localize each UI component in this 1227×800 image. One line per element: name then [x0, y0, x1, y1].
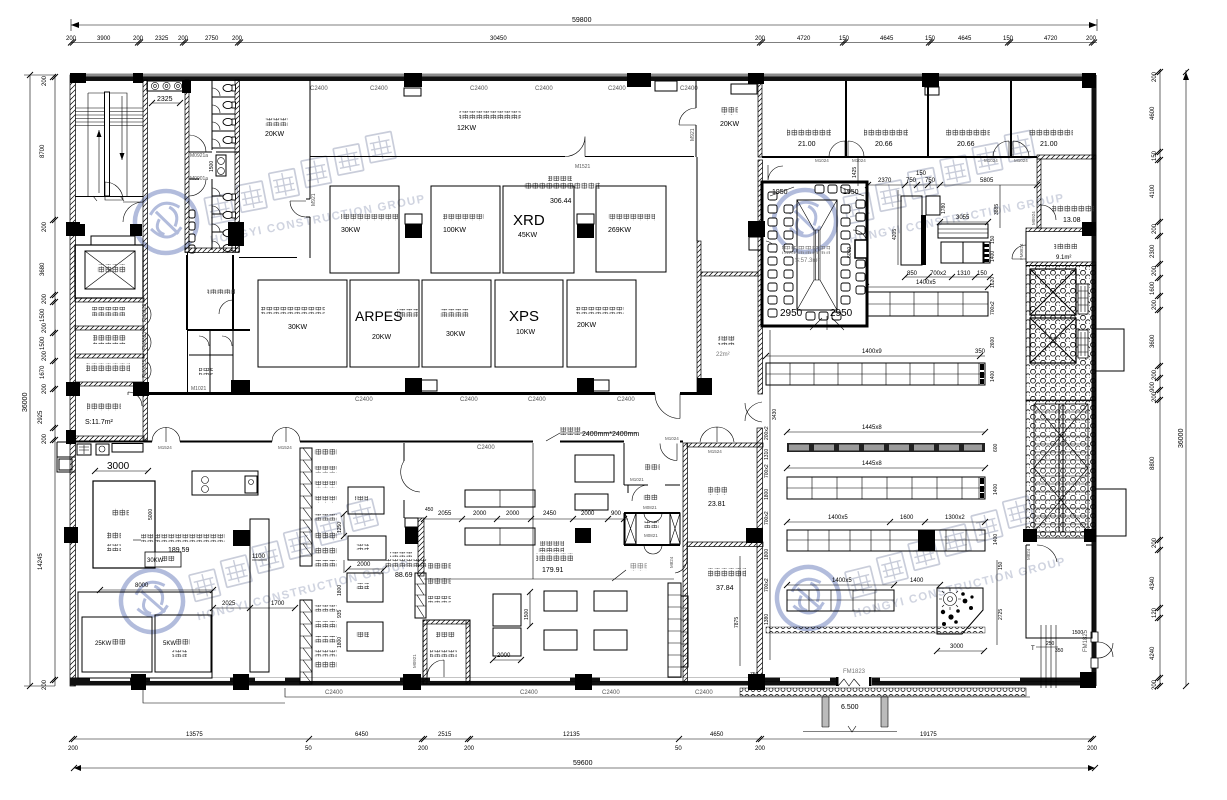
- svg-text:6.500: 6.500: [841, 704, 859, 711]
- svg-text:8000: 8000: [135, 583, 149, 589]
- svg-text:3430: 3430: [772, 409, 778, 420]
- svg-text:C2400: C2400: [602, 690, 620, 696]
- svg-text:2925: 2925: [38, 410, 44, 424]
- svg-text:2025: 2025: [222, 601, 236, 607]
- svg-text:T: T: [1031, 646, 1035, 652]
- svg-text:C2400: C2400: [370, 86, 388, 92]
- svg-text:179.91: 179.91: [542, 567, 564, 574]
- svg-text:750: 750: [906, 178, 917, 184]
- svg-text:30KW: 30KW: [446, 331, 465, 338]
- svg-text:36000: 36000: [22, 392, 29, 412]
- svg-text:5000: 5000: [148, 509, 154, 520]
- svg-text:C2400: C2400: [460, 397, 478, 403]
- svg-text:S:11.7m²: S:11.7m²: [85, 419, 114, 426]
- svg-text:12135: 12135: [563, 732, 580, 738]
- svg-text:2400mm*2400mm: 2400mm*2400mm: [582, 431, 639, 438]
- svg-text:M0821: M0821: [643, 505, 657, 510]
- svg-text:30450: 30450: [490, 36, 507, 42]
- svg-text:37.84: 37.84: [716, 585, 734, 592]
- svg-text:1500: 1500: [40, 336, 46, 350]
- svg-text:M1024: M1024: [984, 158, 998, 163]
- svg-text:1600: 1600: [900, 515, 914, 521]
- svg-text:13.08: 13.08: [1063, 217, 1081, 224]
- svg-text:700x2: 700x2: [764, 464, 770, 478]
- svg-text:30KW: 30KW: [341, 227, 360, 234]
- svg-text:M921: M921: [311, 193, 317, 206]
- svg-text:2325: 2325: [157, 96, 173, 103]
- svg-text:5KW: 5KW: [163, 641, 176, 647]
- svg-text:900: 900: [1150, 381, 1156, 392]
- svg-text:XPS: XPS: [509, 308, 539, 325]
- svg-text:200: 200: [68, 746, 79, 752]
- svg-text:M1021: M1021: [191, 386, 207, 392]
- svg-text:M0924: M0924: [1031, 211, 1036, 225]
- svg-text:3000: 3000: [950, 644, 964, 650]
- svg-text:269KW: 269KW: [608, 227, 631, 234]
- svg-text:FM1825: FM1825: [1083, 629, 1089, 652]
- svg-text:450: 450: [425, 507, 434, 513]
- svg-text:21.00: 21.00: [1040, 141, 1058, 148]
- svg-text:23.81: 23.81: [708, 501, 726, 508]
- svg-text:350: 350: [1055, 648, 1064, 654]
- svg-text:200: 200: [42, 383, 48, 394]
- svg-text:150: 150: [998, 561, 1004, 570]
- svg-text:4720: 4720: [797, 36, 811, 42]
- svg-text:59600: 59600: [573, 760, 593, 767]
- svg-text:88.69: 88.69: [395, 572, 413, 579]
- svg-text:200: 200: [232, 36, 243, 42]
- svg-text:XRD: XRD: [513, 212, 545, 229]
- svg-text:C2400: C2400: [520, 690, 538, 696]
- svg-text:200: 200: [1152, 391, 1158, 402]
- svg-text:1950: 1950: [843, 189, 859, 196]
- svg-text:700x2: 700x2: [764, 578, 770, 592]
- svg-text:FM0823: FM0823: [142, 359, 148, 378]
- svg-text:200: 200: [1152, 223, 1158, 234]
- svg-text:4600: 4600: [1150, 106, 1156, 120]
- svg-text:200: 200: [1152, 537, 1158, 548]
- svg-text:1500: 1500: [40, 308, 46, 322]
- svg-text:250: 250: [1046, 641, 1055, 647]
- svg-text:1620: 1620: [990, 277, 996, 288]
- svg-text:4240: 4240: [1150, 646, 1156, 660]
- svg-text:200: 200: [66, 36, 77, 42]
- svg-text:1780: 1780: [941, 203, 947, 214]
- svg-text:200: 200: [42, 679, 48, 690]
- svg-text:7875: 7875: [734, 617, 740, 628]
- svg-text:M824: M824: [1026, 548, 1031, 560]
- svg-text:150: 150: [977, 271, 988, 277]
- svg-text:935: 935: [337, 609, 343, 618]
- svg-text:M824: M824: [669, 556, 674, 568]
- svg-text:150: 150: [1152, 150, 1158, 161]
- svg-text:8800: 8800: [1150, 456, 1156, 470]
- svg-text:200: 200: [1152, 369, 1158, 380]
- svg-text:C2400: C2400: [355, 397, 373, 403]
- svg-text:700x2: 700x2: [930, 271, 947, 277]
- svg-text:200: 200: [42, 75, 48, 86]
- svg-text:M1024: M1024: [852, 158, 866, 163]
- svg-text:C2400: C2400: [695, 690, 713, 696]
- svg-text:189.59: 189.59: [168, 547, 190, 554]
- svg-text:20.66: 20.66: [875, 141, 893, 148]
- svg-text:700x2: 700x2: [764, 511, 770, 525]
- svg-text:1800: 1800: [764, 549, 770, 560]
- svg-text:3000: 3000: [107, 461, 130, 472]
- svg-text:M1524: M1524: [278, 445, 292, 450]
- svg-text:150: 150: [839, 36, 850, 42]
- svg-text:200: 200: [1152, 71, 1158, 82]
- svg-text:2515: 2515: [438, 732, 452, 738]
- svg-text:1500: 1500: [209, 161, 215, 172]
- svg-text:2300: 2300: [1150, 244, 1156, 258]
- svg-text:150: 150: [990, 235, 996, 244]
- svg-text:4645: 4645: [958, 36, 972, 42]
- svg-text:1400: 1400: [990, 371, 996, 382]
- svg-text:C2400: C2400: [325, 690, 343, 696]
- svg-text:FM1823: FM1823: [843, 669, 866, 675]
- svg-text:20KW: 20KW: [265, 131, 284, 138]
- svg-text:200: 200: [1152, 265, 1158, 276]
- svg-text:750: 750: [750, 672, 759, 678]
- svg-text:C2400: C2400: [608, 86, 626, 92]
- svg-text:2000: 2000: [497, 653, 511, 659]
- svg-text:200: 200: [1086, 36, 1097, 42]
- svg-text:2325: 2325: [155, 36, 169, 42]
- svg-text:200: 200: [42, 293, 48, 304]
- svg-text:4645: 4645: [880, 36, 894, 42]
- svg-text:S:57.3m²: S:57.3m²: [795, 258, 819, 264]
- svg-text:1100: 1100: [252, 554, 266, 560]
- svg-text:100KW: 100KW: [443, 227, 466, 234]
- svg-text:9.1m²: 9.1m²: [1056, 255, 1071, 261]
- svg-text:2000: 2000: [506, 511, 520, 517]
- svg-text:1425: 1425: [852, 167, 858, 178]
- svg-text:M0821: M0821: [644, 533, 658, 538]
- svg-text:M1524: M1524: [708, 449, 722, 454]
- svg-text:M1024: M1024: [665, 436, 679, 441]
- svg-text:14245: 14245: [38, 553, 44, 570]
- svg-text:10KW: 10KW: [516, 329, 535, 336]
- svg-text:M0921: M0921: [412, 654, 417, 668]
- svg-text:200: 200: [42, 322, 48, 333]
- svg-text:M1024: M1024: [1014, 158, 1028, 163]
- svg-text:20KW: 20KW: [577, 322, 596, 329]
- svg-text:1400x5: 1400x5: [828, 515, 848, 521]
- svg-text:22m²: 22m²: [716, 352, 730, 358]
- svg-text:M1524: M1524: [158, 445, 172, 450]
- svg-text:M1024: M1024: [815, 158, 829, 163]
- svg-text:30KW: 30KW: [147, 558, 164, 564]
- svg-text:1400: 1400: [990, 251, 996, 262]
- svg-text:1380: 1380: [764, 614, 770, 625]
- svg-text:1300x2: 1300x2: [945, 515, 965, 521]
- svg-text:M1521: M1521: [575, 164, 591, 170]
- svg-text:30KW: 30KW: [288, 324, 307, 331]
- svg-text:700x2: 700x2: [990, 301, 996, 315]
- svg-text:50: 50: [305, 746, 312, 752]
- svg-text:1500: 1500: [524, 609, 530, 620]
- svg-text:350: 350: [975, 349, 986, 355]
- svg-text:1250: 1250: [337, 522, 343, 533]
- svg-text:C2400: C2400: [477, 445, 495, 451]
- svg-text:150: 150: [916, 171, 927, 177]
- svg-text:200: 200: [464, 746, 475, 752]
- svg-text:2370: 2370: [878, 178, 892, 184]
- svg-text:1400: 1400: [993, 484, 999, 495]
- svg-text:C2400: C2400: [310, 86, 328, 92]
- svg-text:1310: 1310: [957, 271, 971, 277]
- svg-text:59800: 59800: [572, 17, 592, 24]
- svg-text:13575: 13575: [186, 732, 203, 738]
- svg-text:4720: 4720: [1044, 36, 1058, 42]
- svg-text:2950: 2950: [830, 308, 853, 319]
- svg-text:3055: 3055: [956, 215, 970, 221]
- svg-text:200: 200: [42, 433, 48, 444]
- svg-text:200: 200: [42, 221, 48, 232]
- svg-text:1400: 1400: [910, 578, 924, 584]
- svg-text:4100: 4100: [1150, 184, 1156, 198]
- svg-text:1310: 1310: [764, 449, 770, 460]
- svg-text:150: 150: [925, 36, 936, 42]
- svg-text:M0921a: M0921a: [190, 153, 208, 159]
- svg-text:6450: 6450: [355, 732, 369, 738]
- svg-text:FM0823: FM0823: [142, 331, 148, 350]
- svg-text:1670: 1670: [40, 365, 46, 379]
- svg-text:1400x5: 1400x5: [916, 280, 936, 286]
- svg-text:C2400: C2400: [470, 86, 488, 92]
- svg-text:2055: 2055: [438, 511, 452, 517]
- svg-text:8700: 8700: [40, 144, 46, 158]
- svg-text:3680: 3680: [40, 262, 46, 276]
- svg-text:200: 200: [178, 36, 189, 42]
- svg-text:200: 200: [755, 746, 766, 752]
- svg-text:750: 750: [925, 178, 936, 184]
- svg-text:850: 850: [907, 271, 918, 277]
- svg-text:2000: 2000: [357, 562, 371, 568]
- svg-text:M1021: M1021: [630, 477, 644, 482]
- svg-text:600: 600: [993, 443, 999, 452]
- svg-text:200: 200: [1087, 746, 1098, 752]
- svg-text:200: 200: [1152, 679, 1158, 690]
- svg-text:1400x9: 1400x9: [862, 349, 882, 355]
- svg-text:200: 200: [42, 350, 48, 361]
- svg-text:FM0823: FM0823: [142, 303, 148, 322]
- svg-text:2950: 2950: [780, 308, 803, 319]
- svg-text:200: 200: [133, 36, 144, 42]
- svg-text:1950: 1950: [772, 189, 788, 196]
- svg-text:20.66: 20.66: [957, 141, 975, 148]
- svg-text:4650: 4650: [710, 732, 724, 738]
- svg-text:3885: 3885: [994, 204, 1000, 215]
- svg-text:C2400: C2400: [535, 86, 553, 92]
- svg-text:C2400: C2400: [528, 397, 546, 403]
- svg-text:19175: 19175: [920, 732, 937, 738]
- svg-text:1400x5: 1400x5: [832, 578, 852, 584]
- svg-text:3600: 3600: [1150, 334, 1156, 348]
- svg-text:3900: 3900: [97, 36, 111, 42]
- svg-text:306.44: 306.44: [550, 198, 572, 205]
- svg-text:M921: M921: [690, 128, 696, 141]
- svg-text:FM0824: FM0824: [1019, 243, 1024, 260]
- svg-text:4340: 4340: [1150, 576, 1156, 590]
- svg-text:200: 200: [418, 746, 429, 752]
- svg-text:1700: 1700: [271, 601, 285, 607]
- svg-text:2000: 2000: [581, 511, 595, 517]
- svg-text:36000: 36000: [1178, 428, 1185, 448]
- svg-text:5000: 5000: [847, 247, 853, 258]
- svg-text:20KW: 20KW: [372, 334, 391, 341]
- svg-text:1800: 1800: [337, 585, 343, 596]
- svg-text:1445x8: 1445x8: [862, 461, 882, 467]
- svg-text:21.00: 21.00: [798, 141, 816, 148]
- svg-text:200x2: 200x2: [764, 426, 770, 440]
- svg-text:120: 120: [1152, 607, 1158, 618]
- svg-text:ARPES: ARPES: [355, 308, 402, 324]
- svg-text:12KW: 12KW: [457, 125, 476, 132]
- svg-text:2725: 2725: [998, 609, 1004, 620]
- svg-text:5805: 5805: [980, 178, 994, 184]
- svg-text:150: 150: [1003, 36, 1014, 42]
- svg-text:45KW: 45KW: [518, 232, 537, 239]
- svg-text:1600: 1600: [1150, 281, 1156, 295]
- svg-text:25KW: 25KW: [95, 641, 112, 647]
- svg-text:4205: 4205: [892, 229, 898, 240]
- svg-text:1800: 1800: [337, 637, 343, 648]
- svg-text:900: 900: [611, 511, 622, 517]
- svg-text:50: 50: [675, 746, 682, 752]
- svg-text:1400: 1400: [993, 534, 999, 545]
- svg-text:2750: 2750: [205, 36, 219, 42]
- svg-text:C2400: C2400: [617, 397, 635, 403]
- svg-text:2000: 2000: [473, 511, 487, 517]
- svg-text:1800: 1800: [764, 489, 770, 500]
- svg-text:1445x8: 1445x8: [862, 425, 882, 431]
- svg-text:20KW: 20KW: [720, 121, 739, 128]
- svg-text:2600: 2600: [990, 337, 996, 348]
- svg-text:1500: 1500: [1072, 630, 1083, 636]
- svg-text:200: 200: [1152, 299, 1158, 310]
- svg-text:2450: 2450: [543, 511, 557, 517]
- svg-text:200: 200: [755, 36, 766, 42]
